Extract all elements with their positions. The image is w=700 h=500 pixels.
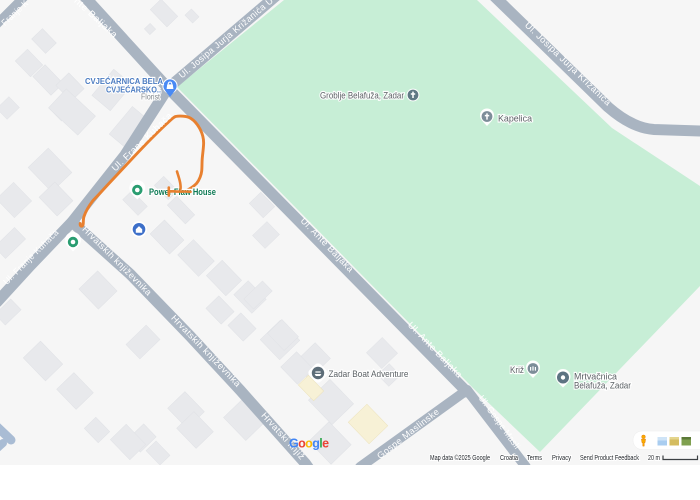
svg-text:Croatia: Croatia	[500, 453, 519, 462]
svg-text:Map data ©2025 Google: Map data ©2025 Google	[430, 453, 490, 462]
svg-text:Groblje Belafuža, Zadar: Groblje Belafuža, Zadar	[320, 91, 404, 101]
svg-text:Kapelica: Kapelica	[498, 114, 532, 124]
svg-text:Terms: Terms	[527, 453, 542, 462]
svg-text:20 m: 20 m	[648, 453, 660, 462]
svg-text:Belafuža, Zadar: Belafuža, Zadar	[574, 381, 631, 391]
svg-text:Send Product Feedback: Send Product Feedback	[580, 453, 639, 462]
svg-text:Zadar Boat Adventure: Zadar Boat Adventure	[329, 369, 409, 379]
svg-text:Privacy: Privacy	[552, 453, 571, 462]
svg-text:Križ: Križ	[510, 365, 524, 375]
svg-text:Florist: Florist	[141, 93, 161, 102]
svg-text:Google: Google	[289, 437, 329, 451]
